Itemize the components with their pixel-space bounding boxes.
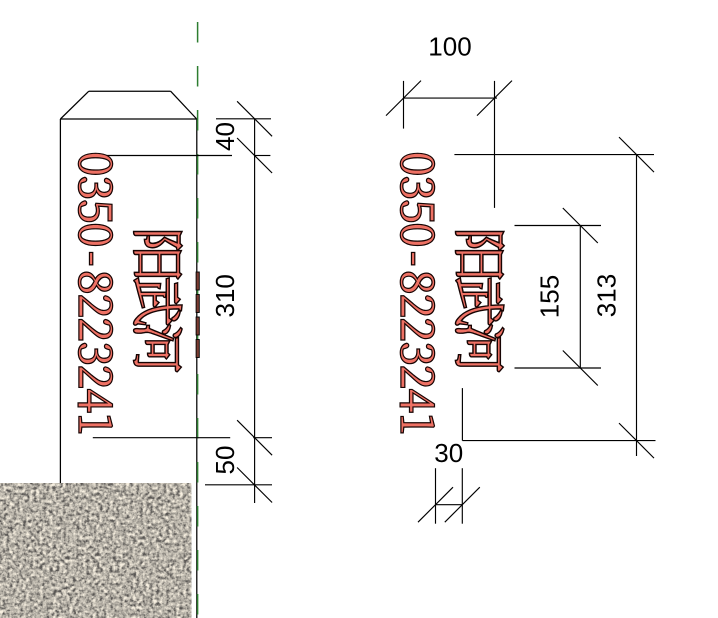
svg-text:50: 50 bbox=[210, 446, 240, 475]
svg-text:310: 310 bbox=[210, 274, 240, 317]
svg-text:155: 155 bbox=[534, 275, 564, 318]
svg-text:40: 40 bbox=[210, 122, 240, 151]
svg-text:313: 313 bbox=[591, 274, 621, 317]
svg-text:100: 100 bbox=[428, 31, 471, 61]
svg-text:30: 30 bbox=[434, 438, 463, 468]
